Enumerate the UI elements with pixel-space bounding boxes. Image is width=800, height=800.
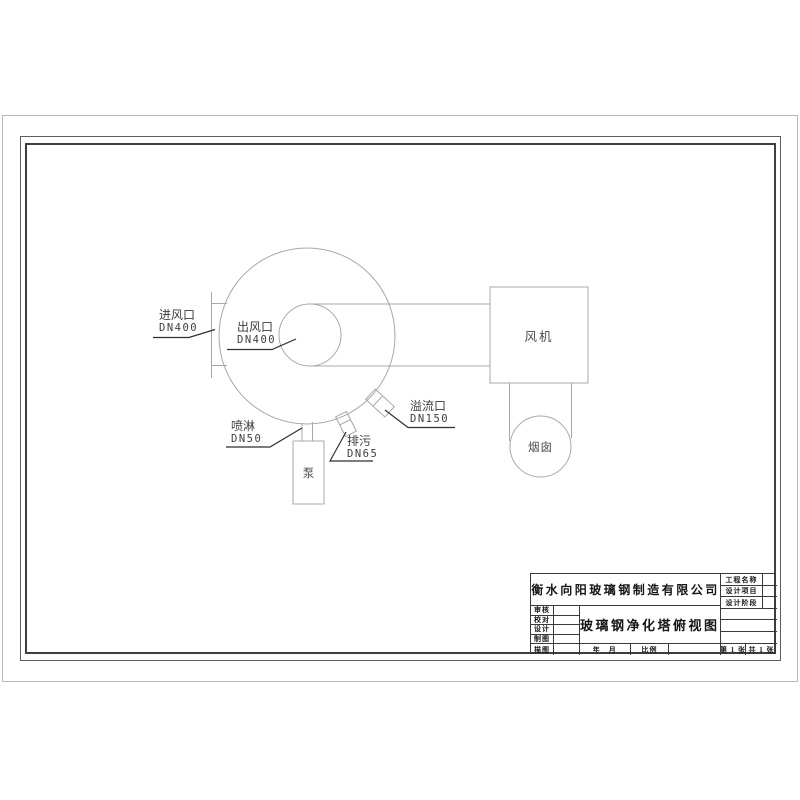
- title-block-empty-row: [721, 609, 777, 620]
- proofread-value: [554, 616, 580, 626]
- tracer-label: 描图: [531, 644, 554, 655]
- drain-label-dn: DN65: [347, 448, 378, 461]
- overflow-label: 溢流口 DN150: [410, 400, 449, 426]
- date-label: 年 月: [580, 644, 632, 655]
- outlet-label-dn: DN400: [237, 334, 276, 347]
- reviewer-value: [554, 606, 580, 616]
- designer-label: 设计: [531, 625, 554, 635]
- pump-label: 泵: [293, 441, 324, 504]
- project-name-label: 工程名称: [721, 574, 763, 586]
- inlet-label-dn: DN400: [159, 322, 198, 335]
- spray-label-name: 喷淋: [231, 420, 262, 433]
- overflow-nozzle: [366, 389, 395, 417]
- project-name-value: [763, 574, 777, 586]
- tracer-value: [554, 644, 580, 655]
- overflow-label-dn: DN150: [410, 413, 449, 426]
- outlet-label: 出风口 DN400: [237, 321, 276, 347]
- drawing-title: 玻璃钢净化塔俯视图: [580, 606, 722, 644]
- design-project-label: 设计项目: [721, 586, 763, 597]
- fan-label: 风机: [490, 287, 588, 383]
- title-block: 衡水向阳玻璃钢制造有限公司 工程名称 设计项目 设计阶段 第 1 张 共 1 张…: [530, 573, 776, 654]
- spray-label: 喷淋 DN50: [231, 420, 262, 446]
- design-stage-label: 设计阶段: [721, 597, 763, 609]
- inlet-label-name: 进风口: [159, 309, 198, 322]
- chimney-label: 烟囱: [510, 431, 571, 462]
- drain-label: 排污 DN65: [347, 435, 378, 461]
- outlet-label-name: 出风口: [237, 321, 276, 334]
- scale-label: 比例: [631, 644, 669, 655]
- sheet-total: 共 1 张: [746, 644, 777, 655]
- drawing-viewer-page: 进风口 DN400 出风口 DN400 溢流口 DN150 排污 DN65 喷淋…: [0, 0, 800, 800]
- drafter-value: [554, 635, 580, 645]
- sheet-number: 第 1 张: [721, 644, 746, 655]
- spray-label-dn: DN50: [231, 433, 262, 446]
- outlet-port-circle: [279, 304, 341, 366]
- overflow-label-name: 溢流口: [410, 400, 449, 413]
- title-block-empty-row: [721, 620, 777, 632]
- drain-label-name: 排污: [347, 435, 378, 448]
- drafter-label: 制图: [531, 635, 554, 645]
- plan-view-geometry: [0, 0, 800, 800]
- reviewer-label: 审核: [531, 606, 554, 616]
- scale-value: [669, 644, 721, 655]
- design-project-value: [763, 586, 777, 597]
- proofread-label: 校对: [531, 616, 554, 626]
- design-stage-value: [763, 597, 777, 609]
- company-name: 衡水向阳玻璃钢制造有限公司: [531, 574, 721, 606]
- inlet-label: 进风口 DN400: [159, 309, 198, 335]
- title-block-empty-row: [721, 632, 777, 644]
- designer-value: [554, 625, 580, 635]
